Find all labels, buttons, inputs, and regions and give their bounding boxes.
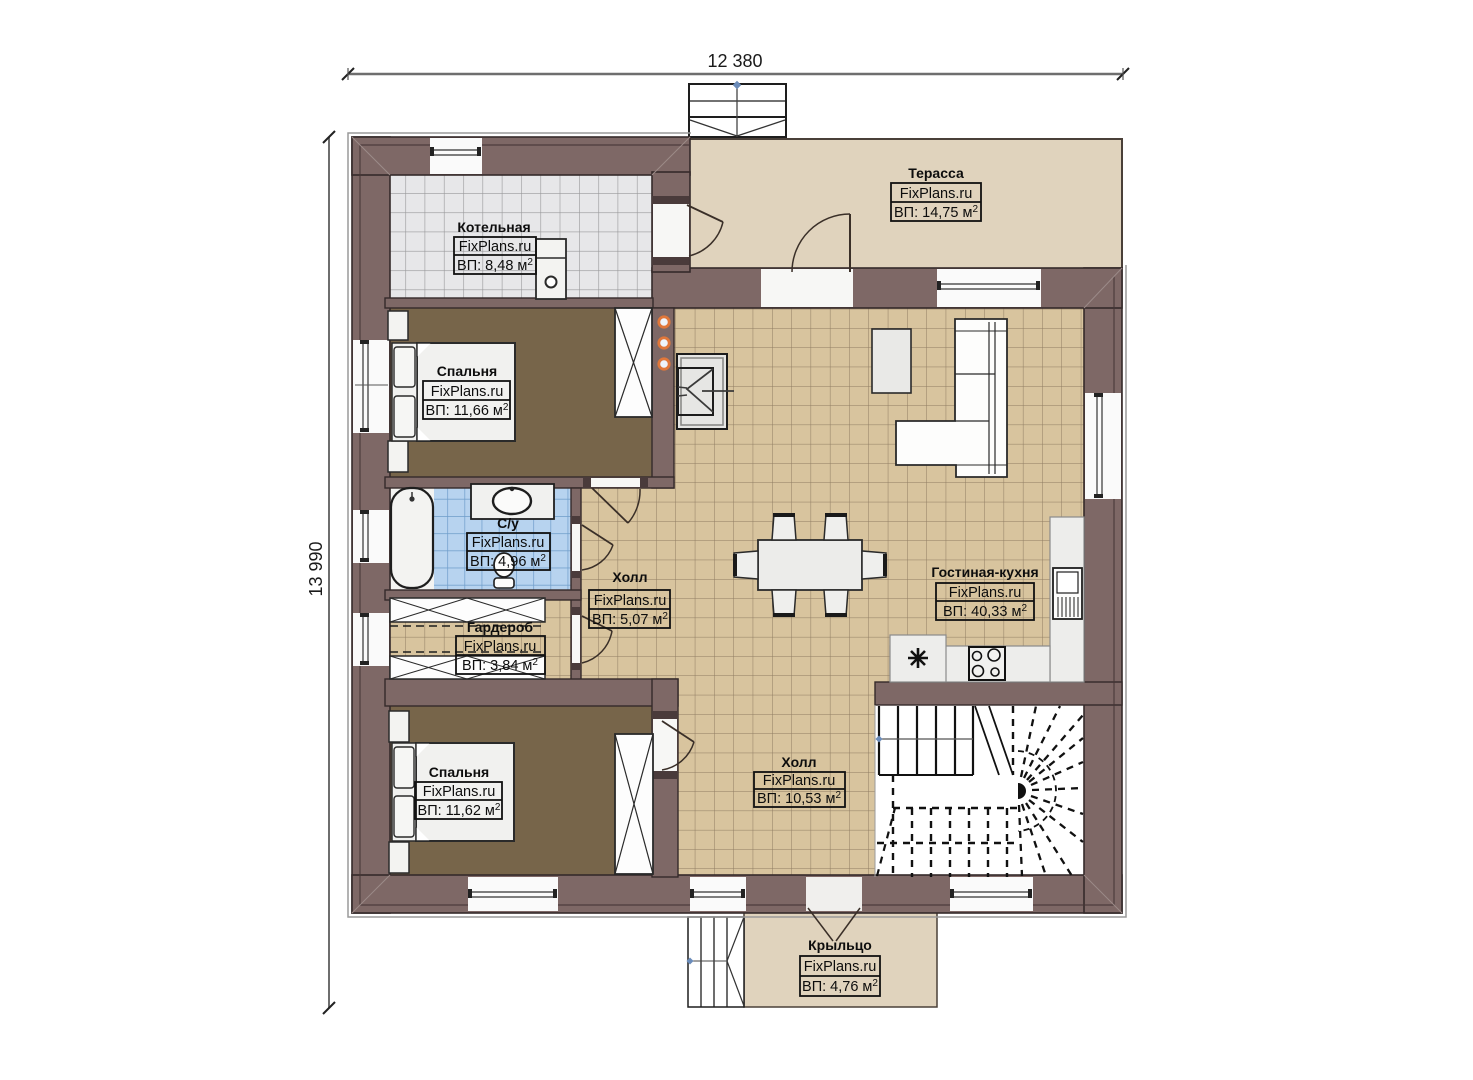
svg-text:ВП: 4,76 м2: ВП: 4,76 м2 bbox=[802, 978, 878, 995]
svg-text:Котельная: Котельная bbox=[457, 219, 530, 235]
svg-text:FixPlans.ru: FixPlans.ru bbox=[459, 239, 532, 255]
svg-text:FixPlans.ru: FixPlans.ru bbox=[594, 593, 667, 609]
svg-text:Холл: Холл bbox=[612, 569, 647, 585]
svg-text:FixPlans.ru: FixPlans.ru bbox=[423, 784, 496, 800]
svg-text:Спальня: Спальня bbox=[429, 764, 489, 780]
svg-text:Гардероб: Гардероб bbox=[467, 619, 534, 635]
svg-text:FixPlans.ru: FixPlans.ru bbox=[472, 535, 545, 551]
svg-text:FixPlans.ru: FixPlans.ru bbox=[949, 585, 1022, 601]
svg-text:ВП: 3,84 м2: ВП: 3,84 м2 bbox=[462, 657, 538, 674]
svg-text:FixPlans.ru: FixPlans.ru bbox=[804, 959, 877, 975]
svg-text:Холл: Холл bbox=[781, 754, 816, 770]
svg-text:ВП: 11,66 м2: ВП: 11,66 м2 bbox=[426, 402, 509, 419]
svg-text:ВП: 8,48 м2: ВП: 8,48 м2 bbox=[457, 257, 533, 274]
svg-text:FixPlans.ru: FixPlans.ru bbox=[464, 639, 537, 655]
svg-text:ВП: 5,07 м2: ВП: 5,07 м2 bbox=[592, 611, 668, 628]
svg-text:Крыльцо: Крыльцо bbox=[808, 937, 872, 953]
svg-text:Терасса: Терасса bbox=[908, 165, 964, 181]
svg-text:FixPlans.ru: FixPlans.ru bbox=[431, 384, 504, 400]
svg-text:Спальня: Спальня bbox=[437, 363, 497, 379]
svg-text:ВП: 4,96 м2: ВП: 4,96 м2 bbox=[470, 553, 546, 570]
svg-text:С/у: С/у bbox=[497, 515, 519, 531]
svg-text:ВП: 14,75 м2: ВП: 14,75 м2 bbox=[894, 204, 978, 221]
svg-text:ВП: 10,53 м2: ВП: 10,53 м2 bbox=[757, 790, 841, 807]
svg-text:FixPlans.ru: FixPlans.ru bbox=[900, 186, 973, 202]
svg-text:ВП: 40,33 м2: ВП: 40,33 м2 bbox=[943, 603, 1027, 620]
svg-text:FixPlans.ru: FixPlans.ru bbox=[763, 773, 836, 789]
svg-text:13 990: 13 990 bbox=[306, 541, 326, 596]
svg-text:12 380: 12 380 bbox=[707, 51, 762, 71]
svg-text:Гостиная-кухня: Гостиная-кухня bbox=[931, 564, 1038, 580]
svg-text:ВП: 11,62 м2: ВП: 11,62 м2 bbox=[418, 802, 501, 819]
